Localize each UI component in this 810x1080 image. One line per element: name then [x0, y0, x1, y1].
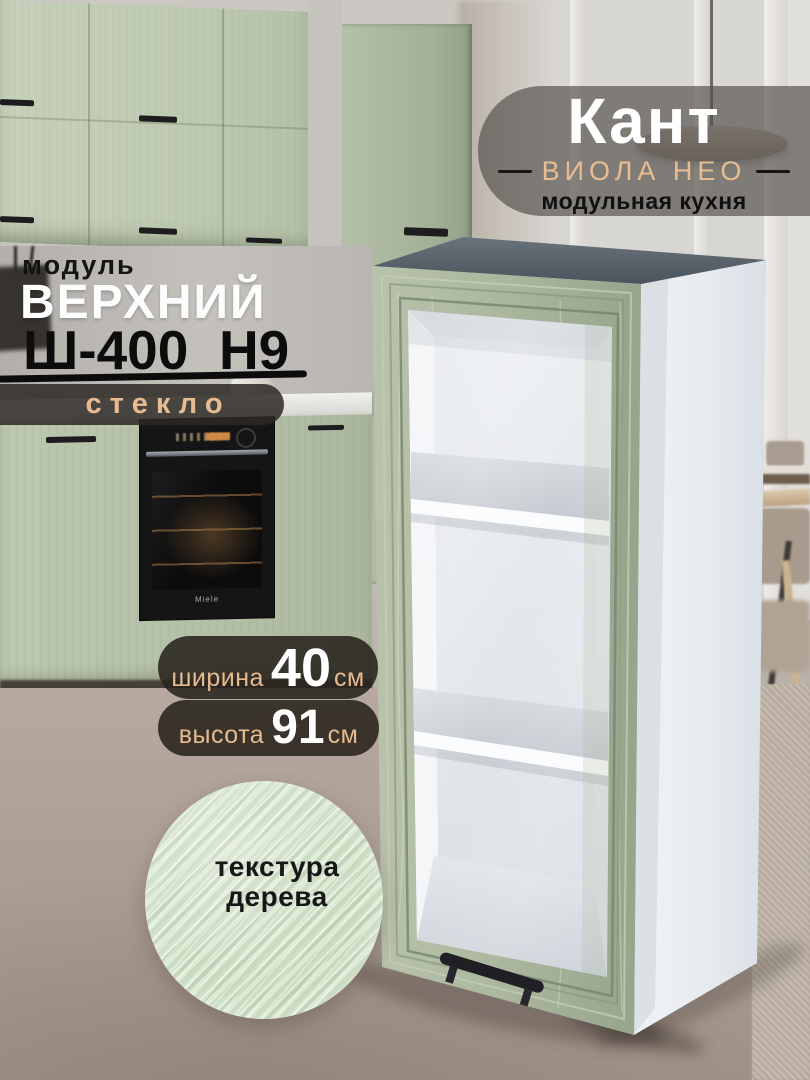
brand-name: Кант [567, 89, 720, 153]
feature-badge-label: стекло [85, 388, 230, 421]
brand-series-row: ВИОЛА НЕО [498, 158, 791, 185]
product-card: Miele [0, 0, 810, 1080]
product-model: Ш-400_Н9 [23, 323, 289, 378]
texture-line1: текстура [215, 852, 340, 882]
brand-panel: Кант ВИОЛА НЕО модульная кухня [478, 86, 810, 216]
brand-series: ВИОЛА НЕО [542, 158, 747, 185]
width-value: 40 [271, 641, 331, 695]
texture-line2: дерева [226, 882, 327, 912]
texture-swatch-label: текстура дерева [145, 781, 383, 1019]
width-label: ширина [171, 664, 264, 693]
glass-green-tint [582, 325, 612, 977]
height-label: высота [179, 721, 264, 750]
glass-gloss [408, 310, 612, 977]
dash-line-right [756, 170, 790, 173]
door-glass [408, 310, 612, 977]
width-unit: см [334, 664, 365, 693]
feature-badge-glass: стекло [0, 384, 284, 425]
texture-swatch: текстура дерева [145, 781, 383, 1019]
product-category-label: модуль [22, 252, 136, 279]
dash-line-left [498, 170, 532, 173]
brand-tagline: модульная кухня [541, 190, 746, 213]
height-unit: см [328, 721, 359, 750]
width-badge: ширина 40 см [158, 636, 378, 699]
height-badge: высота 91 см [158, 700, 379, 756]
height-value: 91 [271, 704, 324, 752]
